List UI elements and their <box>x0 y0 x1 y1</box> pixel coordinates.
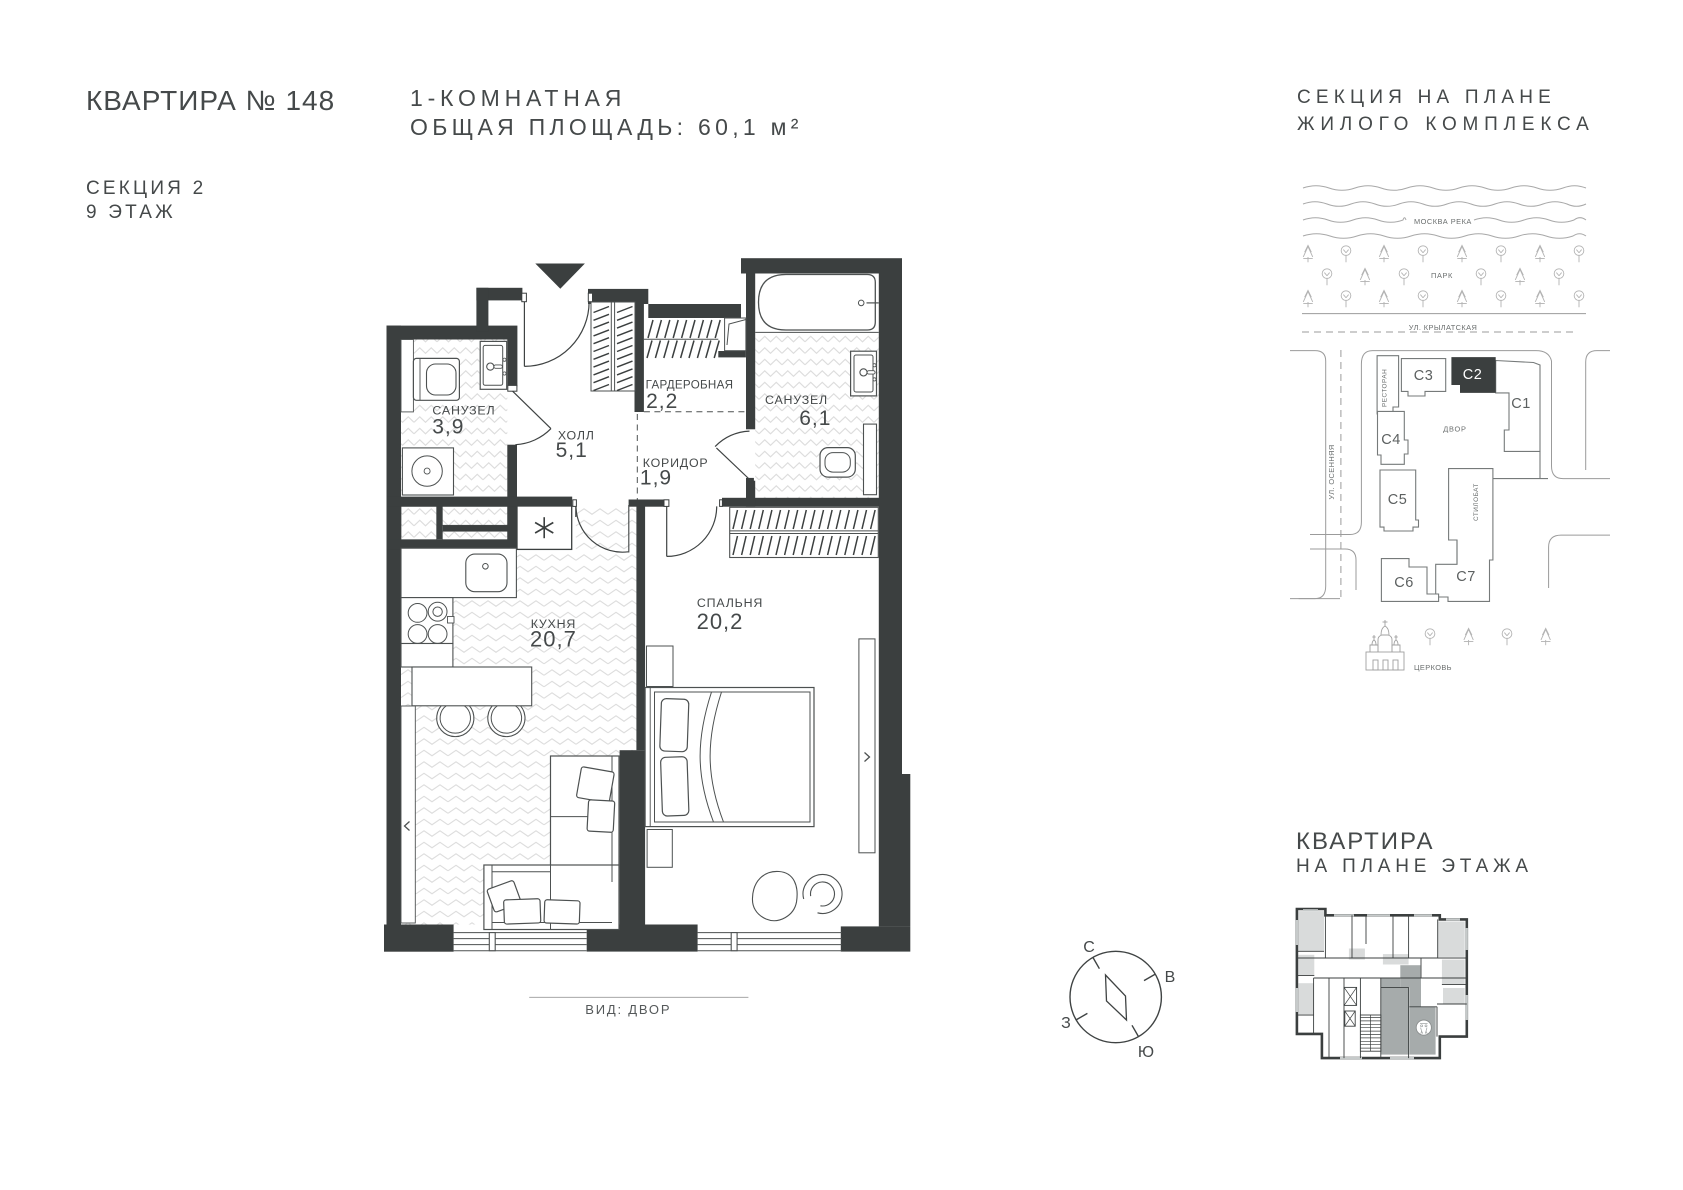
svg-text:ДВОР: ДВОР <box>1443 425 1467 434</box>
svg-text:C7: C7 <box>1456 569 1476 585</box>
svg-text:СЕКЦИЯ 2: СЕКЦИЯ 2 <box>86 178 206 199</box>
svg-text:C6: C6 <box>1394 575 1414 591</box>
svg-text:Ю: Ю <box>1138 1044 1154 1061</box>
svg-text:C1: C1 <box>1511 396 1531 412</box>
svg-text:В: В <box>1165 969 1176 986</box>
svg-text:2,2: 2,2 <box>646 390 678 413</box>
svg-text:КВАРТИРА № 148: КВАРТИРА № 148 <box>86 85 335 116</box>
svg-text:САНУЗЕЛ: САНУЗЕЛ <box>765 393 828 407</box>
svg-text:3,9: 3,9 <box>432 416 464 439</box>
svg-text:РЕСТОРАН: РЕСТОРАН <box>1382 369 1389 407</box>
svg-text:З: З <box>1061 1015 1071 1032</box>
svg-text:5,1: 5,1 <box>556 439 588 462</box>
svg-text:НА ПЛАНЕ ЭТАЖА: НА ПЛАНЕ ЭТАЖА <box>1296 856 1533 877</box>
svg-text:СЕКЦИЯ НА ПЛАНЕ: СЕКЦИЯ НА ПЛАНЕ <box>1297 87 1556 108</box>
svg-text:9 ЭТАЖ: 9 ЭТАЖ <box>86 202 176 223</box>
svg-text:20,7: 20,7 <box>530 627 577 652</box>
svg-text:ЖИЛОГО КОМПЛЕКСА: ЖИЛОГО КОМПЛЕКСА <box>1297 114 1595 135</box>
svg-text:СПАЛЬНЯ: СПАЛЬНЯ <box>697 596 763 610</box>
svg-text:МОСКВА РЕКА: МОСКВА РЕКА <box>1414 217 1472 226</box>
svg-text:C2: C2 <box>1463 367 1483 383</box>
svg-text:6,1: 6,1 <box>799 407 831 430</box>
svg-text:C4: C4 <box>1381 432 1401 448</box>
svg-text:С: С <box>1083 939 1095 956</box>
svg-text:ПАРК: ПАРК <box>1431 271 1453 280</box>
svg-text:C5: C5 <box>1388 492 1408 508</box>
svg-text:C3: C3 <box>1414 368 1434 384</box>
svg-text:ЦЕРКОВЬ: ЦЕРКОВЬ <box>1414 663 1452 672</box>
svg-text:УЛ. ОСЕННЯЯ: УЛ. ОСЕННЯЯ <box>1327 444 1336 499</box>
svg-text:УЛ. КРЫЛАТСКАЯ: УЛ. КРЫЛАТСКАЯ <box>1409 323 1477 332</box>
svg-text:ВИД: ДВОР: ВИД: ДВОР <box>585 1002 671 1017</box>
svg-text:1-КОМНАТНАЯ: 1-КОМНАТНАЯ <box>410 85 626 111</box>
svg-text:1,9: 1,9 <box>640 466 672 489</box>
svg-text:ОБЩАЯ ПЛОЩАДЬ: 60,1 м²: ОБЩАЯ ПЛОЩАДЬ: 60,1 м² <box>410 114 803 140</box>
svg-text:20,2: 20,2 <box>697 609 744 634</box>
svg-text:СТИЛОБАТ: СТИЛОБАТ <box>1473 483 1480 521</box>
svg-text:КВАРТИРА: КВАРТИРА <box>1296 828 1434 855</box>
